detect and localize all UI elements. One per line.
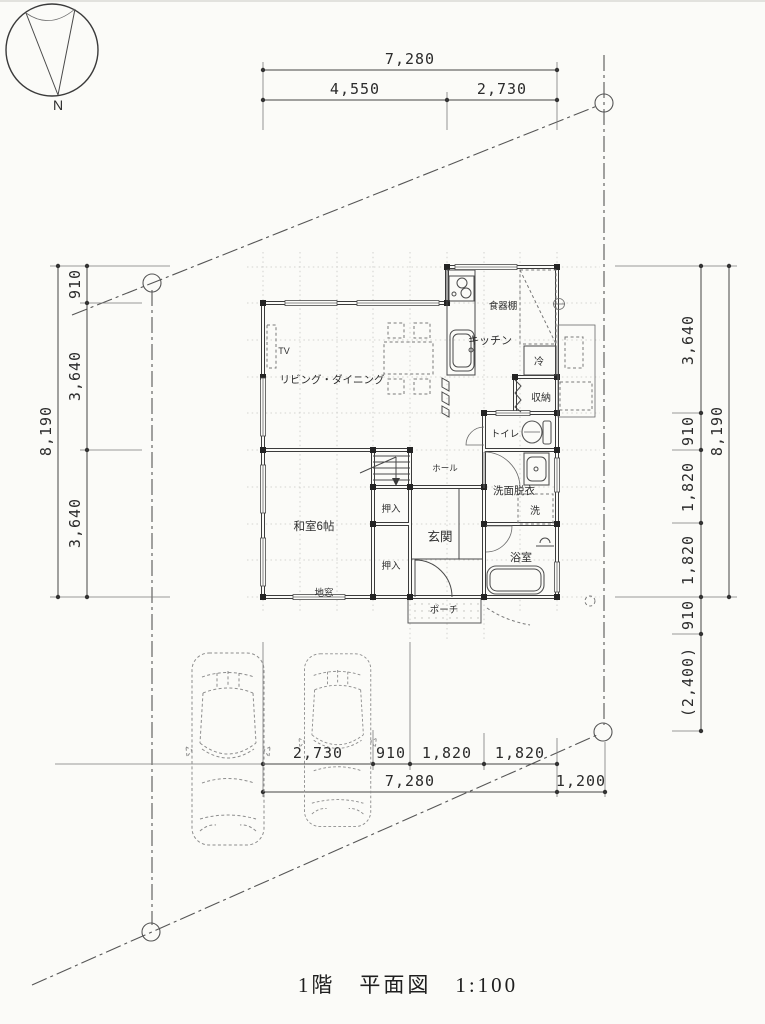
window bbox=[555, 562, 560, 592]
dim-right-d: 1,820 bbox=[679, 535, 697, 585]
dining-set bbox=[384, 323, 433, 394]
dim-left-a: 910 bbox=[66, 269, 84, 299]
dim-top-b: 2,730 bbox=[477, 80, 527, 98]
room-label-storage: 収納 bbox=[531, 391, 551, 404]
dim-top-total: 7,280 bbox=[385, 50, 435, 68]
dim-right-f: (2,400) bbox=[679, 647, 697, 717]
room-label-living-dining: リビング・ダイニング bbox=[280, 373, 385, 386]
dimension-left: 910 3,640 3,640 8,190 bbox=[37, 264, 170, 599]
window bbox=[496, 411, 530, 416]
parked-cars bbox=[186, 653, 376, 845]
cupboard bbox=[520, 270, 556, 344]
stove bbox=[449, 276, 474, 301]
dim-bottom-total: 7,280 bbox=[385, 772, 435, 790]
room-label-porch: ポーチ bbox=[430, 605, 459, 616]
sliding-door-panels bbox=[442, 378, 449, 417]
dim-left-c: 3,640 bbox=[66, 498, 84, 548]
floor-plan-page: N 7,28 bbox=[0, 0, 765, 1024]
dim-bottom-b: 910 bbox=[376, 744, 406, 762]
room-label-bath: 浴室 bbox=[510, 550, 532, 564]
toilet-fixture bbox=[522, 421, 551, 444]
drawing-title: 1階 平面図 1:100 bbox=[298, 973, 518, 997]
label-washer: 洗 bbox=[530, 505, 540, 517]
window bbox=[261, 538, 266, 586]
compass-north-label: N bbox=[53, 97, 63, 113]
dim-top-a: 4,550 bbox=[330, 80, 380, 98]
north-compass: N bbox=[6, 4, 98, 113]
boundary-marker-se bbox=[594, 723, 612, 741]
window bbox=[285, 301, 337, 306]
dimension-bottom: 2,730 910 1,820 1,820 7,280 1,200 bbox=[55, 642, 607, 797]
room-label-closet-2: 押入 bbox=[381, 560, 401, 572]
room-label-hall: ホール bbox=[432, 463, 458, 473]
room-label-genkan: 玄関 bbox=[427, 529, 452, 544]
kitchen-counter bbox=[447, 270, 475, 375]
tv-stand bbox=[267, 325, 276, 368]
dim-bottom-c: 1,820 bbox=[422, 744, 472, 762]
dim-bottom-a: 2,730 bbox=[293, 744, 343, 762]
dim-left-b: 3,640 bbox=[66, 351, 84, 401]
room-label-toilet: トイレ bbox=[491, 429, 520, 440]
floor-plan-canvas: N 7,28 bbox=[0, 0, 765, 1024]
window bbox=[555, 458, 560, 492]
car-right bbox=[299, 654, 376, 827]
outdoor-equipment bbox=[558, 325, 595, 417]
wash-basin bbox=[524, 453, 549, 485]
room-label-washitsu: 和室6帖 bbox=[294, 519, 335, 533]
dim-bottom-d: 1,820 bbox=[495, 744, 545, 762]
site-boundary bbox=[32, 55, 613, 985]
downspout bbox=[585, 596, 595, 606]
label-fridge: 冷 bbox=[534, 355, 544, 368]
dimension-top: 7,280 4,550 2,730 bbox=[261, 50, 559, 130]
label-tv: TV bbox=[278, 346, 290, 356]
dim-right-total: 8,190 bbox=[708, 406, 726, 456]
window bbox=[455, 265, 517, 270]
dim-right-b: 910 bbox=[679, 416, 697, 446]
dim-left-total: 8,190 bbox=[37, 406, 55, 456]
entrance-door bbox=[415, 560, 452, 597]
dim-bottom-extra: 1,200 bbox=[556, 772, 606, 790]
window bbox=[261, 378, 266, 436]
dim-right-e: 910 bbox=[679, 600, 697, 630]
label-floor-window: 地窓 bbox=[314, 587, 333, 599]
toilet-door bbox=[466, 427, 484, 445]
bathtub bbox=[487, 538, 554, 594]
label-cupboard: 食器棚 bbox=[489, 300, 518, 312]
washroom-door bbox=[484, 452, 520, 488]
dim-right-c: 1,820 bbox=[679, 462, 697, 512]
module-grid bbox=[247, 252, 600, 640]
window bbox=[357, 301, 439, 306]
bathroom-door bbox=[486, 526, 512, 552]
staircase bbox=[360, 456, 410, 486]
room-label-kitchen: キッチン bbox=[468, 334, 512, 347]
window bbox=[261, 465, 266, 513]
room-label-washroom: 洗面脱衣 bbox=[493, 484, 535, 497]
step-stones bbox=[487, 608, 530, 625]
stair-direction-arrow bbox=[360, 457, 400, 486]
car-left bbox=[186, 653, 270, 845]
dim-right-a: 3,640 bbox=[679, 315, 697, 365]
dimension-right: 3,640 910 1,820 1,820 910 (2,400) 8,190 bbox=[615, 264, 737, 733]
room-label-closet-1: 押入 bbox=[381, 503, 401, 515]
